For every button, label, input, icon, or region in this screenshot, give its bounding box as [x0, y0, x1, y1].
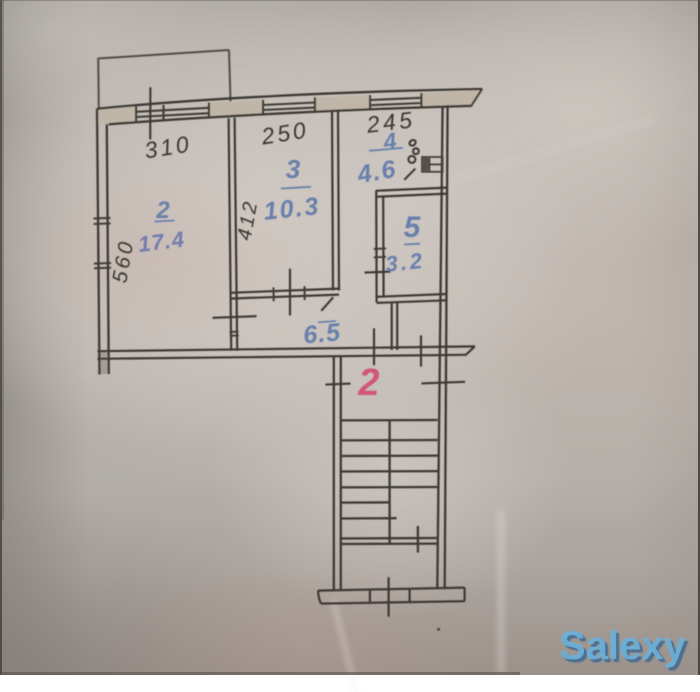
svg-text:5: 5: [404, 211, 422, 244]
svg-text:4.6: 4.6: [354, 155, 399, 190]
svg-text:560: 560: [108, 237, 138, 284]
svg-text:250: 250: [259, 116, 311, 149]
svg-text:17.4: 17.4: [137, 226, 187, 257]
svg-text:2: 2: [357, 362, 379, 404]
svg-text:412: 412: [234, 198, 263, 242]
svg-text:6.5: 6.5: [302, 318, 342, 349]
svg-text:10.3: 10.3: [262, 192, 321, 226]
svg-text:3.2: 3.2: [384, 248, 426, 277]
svg-text:3: 3: [286, 154, 301, 184]
